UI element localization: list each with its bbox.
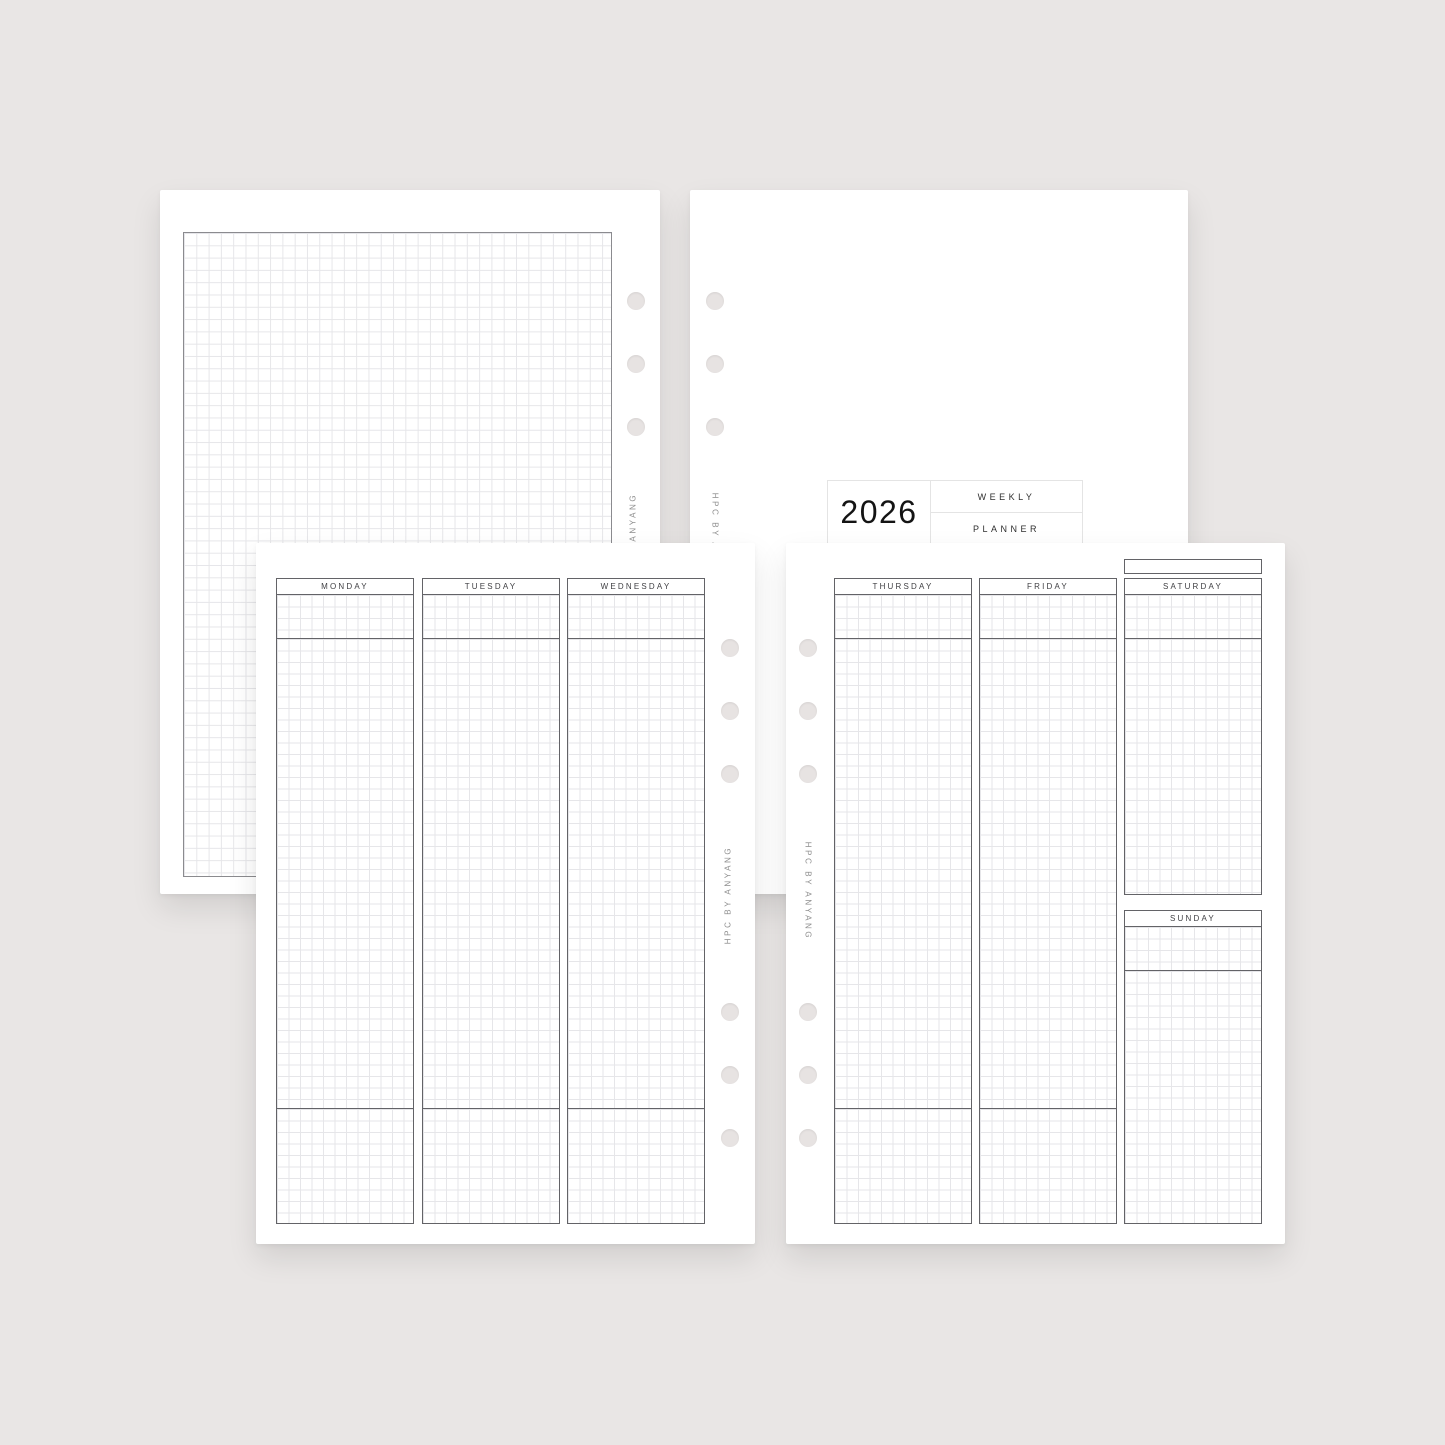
day-main-section <box>1125 639 1261 894</box>
cover-title-line2: PLANNER <box>931 513 1082 544</box>
cover-title-block: 2026 WEEKLY PLANNER <box>827 480 1083 545</box>
binder-hole <box>627 418 645 436</box>
day-main-section <box>980 639 1116 1109</box>
day-header-monday: MONDAY <box>277 579 413 595</box>
day-header-sunday: SUNDAY <box>1125 911 1261 927</box>
day-main-section <box>568 639 704 1109</box>
day-bottom-section <box>277 1109 413 1223</box>
day-main-section <box>277 639 413 1109</box>
cover-year: 2026 <box>828 481 931 544</box>
binder-hole <box>706 418 724 436</box>
planner-mockup-scene: HPC BY ANYANG 2026 WEEKLY PLANNER HPC BY… <box>0 0 1445 1445</box>
binder-hole <box>721 1129 739 1147</box>
cover-title-line1: WEEKLY <box>931 481 1082 513</box>
day-header-wednesday: WEDNESDAY <box>568 579 704 595</box>
saturday-column: SATURDAY <box>1124 578 1262 895</box>
day-main-section <box>835 639 971 1109</box>
day-top-section <box>423 595 559 639</box>
day-top-section <box>1125 927 1261 971</box>
tuesday-column: TUESDAY <box>422 578 560 1224</box>
binder-hole <box>721 765 739 783</box>
binder-hole <box>706 355 724 373</box>
binder-hole <box>721 639 739 657</box>
day-header-friday: FRIDAY <box>980 579 1116 595</box>
day-bottom-section <box>568 1109 704 1223</box>
day-bottom-section <box>835 1109 971 1223</box>
binder-hole <box>721 1003 739 1021</box>
binder-hole <box>627 292 645 310</box>
binder-hole <box>799 1066 817 1084</box>
day-top-section <box>277 595 413 639</box>
sunday-column: SUNDAY <box>1124 910 1262 1224</box>
week-label-box <box>1124 559 1262 574</box>
monday-column: MONDAY <box>276 578 414 1224</box>
day-top-section <box>835 595 971 639</box>
day-header-thursday: THURSDAY <box>835 579 971 595</box>
binder-hole <box>627 355 645 373</box>
day-main-section <box>1125 971 1261 1223</box>
binder-hole <box>799 702 817 720</box>
wednesday-column: WEDNESDAY <box>567 578 705 1224</box>
day-header-tuesday: TUESDAY <box>423 579 559 595</box>
binder-hole <box>799 639 817 657</box>
binder-hole <box>799 1003 817 1021</box>
binder-hole <box>799 1129 817 1147</box>
brand-text: HPC BY ANYANG <box>804 842 813 940</box>
day-top-section <box>1125 595 1261 639</box>
binder-hole <box>721 1066 739 1084</box>
binder-hole <box>721 702 739 720</box>
day-main-section <box>423 639 559 1109</box>
binder-hole <box>799 765 817 783</box>
day-bottom-section <box>423 1109 559 1223</box>
day-bottom-section <box>980 1109 1116 1223</box>
day-top-section <box>980 595 1116 639</box>
day-top-section <box>568 595 704 639</box>
day-header-saturday: SATURDAY <box>1125 579 1261 595</box>
cover-title-column: WEEKLY PLANNER <box>931 481 1082 544</box>
brand-text: HPC BY ANYANG <box>724 846 733 944</box>
friday-column: FRIDAY <box>979 578 1117 1224</box>
binder-hole <box>706 292 724 310</box>
page-week-left: MONDAY TUESDAY WEDNESDAY HPC BY ANYANG <box>256 543 755 1244</box>
thursday-column: THURSDAY <box>834 578 972 1224</box>
page-week-right: THURSDAY FRIDAY SATURDAY SUNDAY HPC BY <box>786 543 1285 1244</box>
